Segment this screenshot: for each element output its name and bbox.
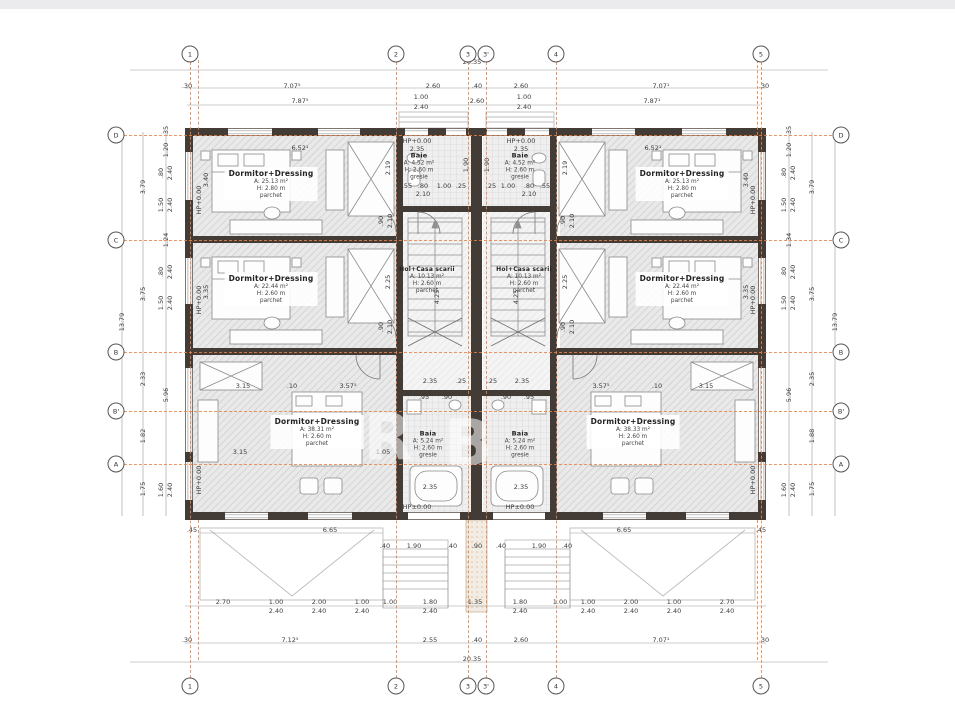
grid-bubble-top: 2 [388, 46, 405, 63]
dimension-label: 13.79 [119, 313, 126, 332]
grid-axis-line [486, 62, 487, 678]
room-finish: parchet [229, 193, 314, 199]
dimension-label: 2.40 [423, 608, 437, 615]
grid-bubble-bottom: 3 [460, 678, 477, 695]
grid-axis-line [761, 62, 762, 678]
dimension-label: 1.00 [437, 183, 451, 190]
grid-axis-line [124, 464, 832, 465]
dimension-label: 6.65 [323, 527, 337, 534]
dimension-label: 3.75 [809, 287, 816, 301]
dimension-label: 2.40 [581, 608, 595, 615]
dimension-label: HP+0.00 [750, 186, 757, 215]
dimension-label: 2.40 [312, 608, 326, 615]
dimension-label: .90 [560, 216, 567, 226]
room-finish: parchet [399, 288, 455, 294]
room-name: Dormitor+Dressing [640, 169, 725, 178]
dimension-label: .80 [524, 183, 534, 190]
grid-bubble-left: B [108, 344, 125, 361]
dimension-label: 2.40 [167, 166, 174, 180]
dimension-label: 2.19 [385, 161, 392, 175]
grid-axis-line [124, 240, 832, 241]
dimension-label: 2.33 [140, 372, 147, 386]
dimension-label: 1.00 [501, 183, 515, 190]
room-name: Dormitor+Dressing [640, 274, 725, 283]
dimension-label: 1.35 [468, 599, 482, 606]
dimension-label: 3.75 [140, 287, 147, 301]
dimension-label: 2.35 [809, 372, 816, 386]
grid-bubble-left: D [108, 127, 125, 144]
dimension-label: 6.65 [617, 527, 631, 534]
dimension-label: 1.50 [781, 198, 788, 212]
grid-bubble-bottom: 4 [548, 678, 565, 695]
room-name: Baie [505, 152, 535, 160]
room-name: Baia [413, 430, 443, 438]
room-label-bath-bottom-left: Baia A: 5.24 m² H: 2.60 m gresie [413, 430, 443, 459]
room-label-bedroom-top-left: Dormitor+Dressing A: 25.13 m² H: 2.80 m … [225, 167, 318, 201]
dimension-label: 2.40 [790, 166, 797, 180]
dimension-label: .95 [524, 394, 534, 401]
dimension-label: 2.10 [387, 320, 394, 334]
room-label-bath-top-right: Baie A: 4.52 m² H: 2.60 m gresie [505, 152, 535, 181]
room-finish: gresie [505, 175, 535, 181]
dimension-label: .40 [380, 543, 390, 550]
dimension-label: 2.40 [517, 104, 531, 111]
dimension-label: 1.00 [269, 599, 283, 606]
grid-bubble-bottom: 5 [753, 678, 770, 695]
dimension-label: 20.35 [463, 656, 482, 663]
dimension-label: HP+0.00 [507, 138, 536, 145]
room-area: A: 22.44 m² [229, 284, 314, 290]
room-label-bedroom-mid-left: Dormitor+Dressing A: 22.44 m² H: 2.60 m … [225, 272, 318, 306]
secondary-axis-line [198, 520, 199, 660]
room-area: A: 25.13 m² [640, 179, 725, 185]
dimension-label: 3.79 [140, 180, 147, 194]
dimension-label: .25 [456, 378, 466, 385]
dimension-label: 3.15 [699, 383, 713, 390]
dimension-label: .90 [560, 322, 567, 332]
grid-axis-line [124, 352, 832, 353]
grid-bubble-right: B [833, 344, 850, 361]
dimension-label: 1.00 [667, 599, 681, 606]
dimension-label: .25 [456, 183, 466, 190]
dimension-label: 2.00 [312, 599, 326, 606]
dimension-label: 3.57⁵ [339, 383, 356, 390]
room-label-bath-top-left: Baie A: 4.52 m² H: 2.60 m gresie [404, 152, 434, 181]
dimension-label: 3.35 [203, 285, 210, 299]
dimension-label: HP±0.00 [403, 504, 432, 511]
dimension-label: 3.79 [809, 180, 816, 194]
grid-bubble-bottom: 1 [182, 678, 199, 695]
grid-bubble-left: A [108, 456, 125, 473]
dimension-label: 7.12⁵ [281, 637, 298, 644]
room-finish: parchet [591, 441, 676, 447]
dimension-label: 1.00 [517, 94, 531, 101]
dimension-label: 2.40 [269, 608, 283, 615]
dimension-label: 3.57⁵ [592, 383, 609, 390]
dimension-label: .10 [652, 383, 662, 390]
room-area: A: 5.24 m² [505, 439, 535, 445]
room-name: Hol+Casa scarii [496, 266, 552, 273]
dimension-label: .40 [472, 83, 482, 90]
room-finish: parchet [496, 288, 552, 294]
dimension-label: .10 [287, 383, 297, 390]
room-finish: parchet [640, 298, 725, 304]
dimension-label: 7.87⁵ [291, 98, 308, 105]
dimension-label: 2.40 [790, 296, 797, 310]
room-height: H: 2.60 m [505, 168, 535, 174]
dimension-label: 2.10 [416, 191, 430, 198]
dimension-label: 1.20 [786, 143, 793, 157]
dimension-label: 2.40 [790, 198, 797, 212]
secondary-axis-line [757, 60, 758, 135]
dimension-label: 3.15 [233, 449, 247, 456]
dimension-label: 2.10 [387, 214, 394, 228]
room-area: A: 5.24 m² [413, 439, 443, 445]
dimension-label: 2.70 [216, 599, 230, 606]
dimension-label: 7.07⁵ [283, 83, 300, 90]
dimension-label: 2.40 [513, 608, 527, 615]
dimension-label: .55 [402, 183, 412, 190]
room-area: A: 4.52 m² [404, 161, 434, 167]
room-height: H: 2.60 m [505, 446, 535, 452]
grid-bubble-top: 1 [182, 46, 199, 63]
dimension-label: 2.60 [470, 98, 484, 105]
room-finish: gresie [404, 175, 434, 181]
grid-axis-line [396, 62, 397, 678]
dimension-label: 2.10 [569, 214, 576, 228]
dimension-label: 2.40 [790, 483, 797, 497]
secondary-axis-line [198, 60, 199, 135]
dimension-label: 2.40 [167, 483, 174, 497]
dimension-label: 2.40 [167, 296, 174, 310]
dimension-label: 2.60 [426, 83, 440, 90]
grid-bubble-right: B' [833, 403, 850, 420]
dimension-label: 1.60 [781, 483, 788, 497]
dimension-label: HP+0.00 [196, 186, 203, 215]
dimension-label: 2.55 [423, 637, 437, 644]
dimension-label: .90 [472, 543, 482, 550]
dimension-label: 1.50 [781, 296, 788, 310]
room-label-bedroom-bottom-left: Dormitor+Dressing A: 38.31 m² H: 2.60 m … [271, 415, 364, 449]
grid-bubble-bottom: 3' [478, 678, 495, 695]
grid-bubble-right: A [833, 456, 850, 473]
dimension-label: .45 [187, 527, 197, 534]
dimension-label: 1.50 [158, 296, 165, 310]
dimension-label: 1.75 [809, 482, 816, 496]
room-area: A: 10.13 m² [496, 274, 552, 280]
room-name: Dormitor+Dressing [229, 169, 314, 178]
room-height: H: 2.60 m [591, 434, 676, 440]
dimension-label: 2.35 [423, 378, 437, 385]
grid-bubble-right: D [833, 127, 850, 144]
dimension-label: 2.40 [414, 104, 428, 111]
grid-bubble-top: 5 [753, 46, 770, 63]
room-name: Hol+Casa scarii [399, 266, 455, 273]
grid-bubble-left: C [108, 232, 125, 249]
dimension-label: 1.90 [484, 158, 491, 172]
room-height: H: 2.60 m [399, 281, 455, 287]
dimension-label: 6.52¹ [644, 145, 661, 152]
floorplan-canvas: Dormitor+Dressing A: 25.13 m² H: 2.80 m … [0, 0, 955, 720]
dimension-label: 2.40 [167, 198, 174, 212]
dimension-label: 1.90 [532, 543, 546, 550]
dimension-label: 1.88 [809, 429, 816, 443]
dimension-label: 2.00 [624, 599, 638, 606]
dimension-label: 1.00 [355, 599, 369, 606]
dimension-label: 1.90 [407, 543, 421, 550]
dimension-label: 1.75 [140, 482, 147, 496]
dimension-label: .90 [442, 394, 452, 401]
dimension-label: 1.00 [414, 94, 428, 101]
room-height: H: 2.80 m [229, 186, 314, 192]
dimension-label: 2.40 [667, 608, 681, 615]
dimension-label: 2.35 [423, 484, 437, 491]
dimension-label: 7.87¹ [643, 98, 660, 105]
dimension-label: .90 [378, 322, 385, 332]
room-area: A: 10.13 m² [399, 274, 455, 280]
dimension-label: .80 [418, 183, 428, 190]
dimension-label: 6.52¹ [291, 145, 308, 152]
grid-axis-line [124, 135, 832, 136]
grid-axis-line [190, 62, 191, 678]
dimension-label: 2.10 [569, 320, 576, 334]
dimension-label: .40 [447, 543, 457, 550]
dimension-label: 1.00 [581, 599, 595, 606]
dimension-label: .80 [158, 267, 165, 277]
dimension-label: .90 [378, 216, 385, 226]
dimension-label: 2.25 [562, 275, 569, 289]
dimension-label: 2.25 [385, 275, 392, 289]
room-height: H: 2.60 m [404, 168, 434, 174]
grid-axis-line [556, 62, 557, 678]
dimension-label: 2.60 [514, 83, 528, 90]
room-area: A: 38.33 m² [591, 427, 676, 433]
room-name: Dormitor+Dressing [275, 417, 360, 426]
room-finish: parchet [640, 193, 725, 199]
dimension-label: .80 [158, 168, 165, 178]
dimension-label: 1.50 [158, 198, 165, 212]
dimension-label: .40 [496, 543, 506, 550]
dimension-label: 2.60 [514, 637, 528, 644]
room-name: Baia [505, 430, 535, 438]
dimension-label: 2.70 [720, 599, 734, 606]
room-label-bedroom-bottom-right: Dormitor+Dressing A: 38.33 m² H: 2.60 m … [587, 415, 680, 449]
dimension-label: 1.82 [140, 429, 147, 443]
dimension-label: HP+0.00 [750, 466, 757, 495]
room-area: A: 4.52 m² [505, 161, 535, 167]
grid-bubble-left: B' [108, 403, 125, 420]
room-height: H: 2.60 m [229, 291, 314, 297]
dimension-label: .40 [562, 543, 572, 550]
dimension-label: 2.40 [355, 608, 369, 615]
grid-bubble-bottom: 2 [388, 678, 405, 695]
dimension-label: 5.96 [163, 388, 170, 402]
room-height: H: 2.60 m [275, 434, 360, 440]
dimension-label: HP+0.00 [196, 466, 203, 495]
room-name: Dormitor+Dressing [591, 417, 676, 426]
dimension-label: 2.19 [562, 161, 569, 175]
dimension-label: .95 [419, 394, 429, 401]
room-area: A: 38.31 m² [275, 427, 360, 433]
room-label-bedroom-top-right: Dormitor+Dressing A: 25.13 m² H: 2.80 m … [636, 167, 729, 201]
room-area: A: 22.44 m² [640, 284, 725, 290]
dimension-label: 3.15 [236, 383, 250, 390]
dimension-label: 1.80 [513, 599, 527, 606]
dimension-label: .40 [472, 637, 482, 644]
room-height: H: 2.60 m [413, 446, 443, 452]
room-finish: gresie [413, 453, 443, 459]
dimension-label: .55 [540, 183, 550, 190]
room-height: H: 2.80 m [640, 186, 725, 192]
dimension-label: 2.35 [514, 484, 528, 491]
dimension-label: 2.40 [720, 608, 734, 615]
room-label-hall-left: Hol+Casa scarii A: 10.13 m² H: 2.60 m pa… [399, 266, 455, 294]
dimension-label: .90 [501, 394, 511, 401]
room-name: Dormitor+Dressing [229, 274, 314, 283]
dimension-label: 2.10 [522, 191, 536, 198]
dimension-label: 2.40 [790, 265, 797, 279]
dimension-label: 5.96 [786, 388, 793, 402]
dimension-label: .25 [487, 378, 497, 385]
dimension-label: 2.40 [167, 265, 174, 279]
dimension-label: 3.40 [743, 173, 750, 187]
dimension-label: 1.20 [163, 143, 170, 157]
room-finish: gresie [505, 453, 535, 459]
room-label-bath-bottom-right: Baia A: 5.24 m² H: 2.60 m gresie [505, 430, 535, 459]
room-height: H: 2.60 m [640, 291, 725, 297]
grid-bubble-top: 3 [460, 46, 477, 63]
room-label-hall-right: Hol+Casa scarii A: 10.13 m² H: 2.60 m pa… [496, 266, 552, 294]
room-height: H: 2.60 m [496, 281, 552, 287]
dimension-label: HP±0.00 [506, 504, 535, 511]
dimension-label: 3.35 [743, 285, 750, 299]
room-finish: parchet [229, 298, 314, 304]
dimension-label: 3.40 [203, 173, 210, 187]
dimension-label: 1.60 [158, 483, 165, 497]
grid-axis-line [124, 411, 832, 412]
grid-bubble-right: C [833, 232, 850, 249]
grid-bubble-top: 3' [478, 46, 495, 63]
dimension-label: HP+0.00 [750, 286, 757, 315]
dimension-label: 2.35 [515, 378, 529, 385]
dimension-label: 1.05 [376, 449, 390, 456]
grid-bubble-top: 4 [548, 46, 565, 63]
secondary-axis-line [757, 520, 758, 660]
dimension-label: 1.80 [423, 599, 437, 606]
dimension-label: 1.00 [553, 599, 567, 606]
dimension-label: 7.07¹ [652, 637, 669, 644]
dimension-label: 2.40 [624, 608, 638, 615]
labels-layer: Dormitor+Dressing A: 25.13 m² H: 2.80 m … [0, 0, 955, 720]
dimension-label: .80 [781, 168, 788, 178]
dimension-label: .25 [486, 183, 496, 190]
dimension-label: .80 [781, 267, 788, 277]
dimension-label: 13.79 [832, 313, 839, 332]
dimension-label: 7.07¹ [652, 83, 669, 90]
room-label-bedroom-mid-right: Dormitor+Dressing A: 22.44 m² H: 2.60 m … [636, 272, 729, 306]
room-area: A: 25.13 m² [229, 179, 314, 185]
room-name: Baie [404, 152, 434, 160]
room-finish: parchet [275, 441, 360, 447]
grid-axis-line [468, 62, 469, 678]
dimension-label: HP+0.00 [403, 138, 432, 145]
